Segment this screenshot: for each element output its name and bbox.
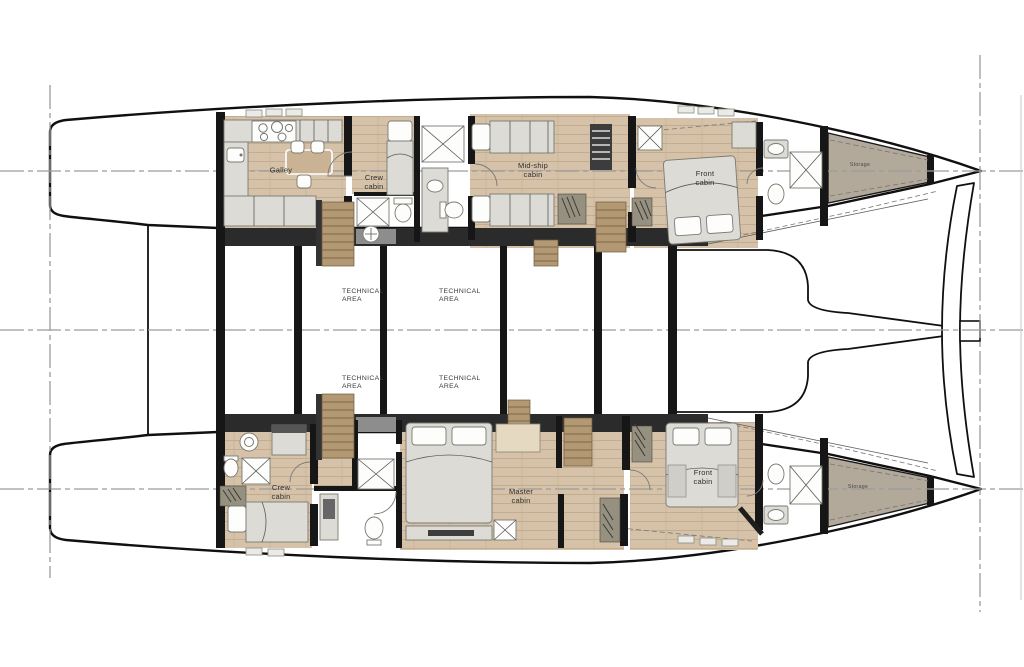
room-label-master-cabin: Master cabin: [504, 488, 538, 506]
galley-table: [286, 150, 332, 174]
bed-pillow: [472, 196, 490, 222]
galley-chair: [311, 141, 324, 153]
midship-bed-upper: [490, 121, 554, 153]
bed-pillow: [706, 214, 733, 234]
vanity: [422, 168, 448, 232]
tv-unit: [428, 530, 474, 536]
label-technical-area-2: TECHNICAL AREA: [439, 288, 487, 304]
crew-bed: [246, 502, 308, 542]
room-label-starboard-storage: Storage: [838, 484, 878, 490]
label-technical-area-4: TECHNICAL AREA: [439, 375, 487, 391]
room-label-port-storage: Storage: [840, 162, 880, 168]
bed-pillow: [674, 216, 701, 236]
toilet: [395, 204, 411, 222]
bowsprit-fitting: [960, 321, 980, 341]
washing-machine: [240, 433, 258, 451]
galley-chair: [291, 141, 304, 153]
room-label-starboard-crew-cabin: Crew cabin: [264, 484, 298, 502]
room-label-starboard-front-cabin: Front cabin: [686, 469, 720, 487]
staircase-starboard-aft: [316, 394, 354, 460]
room-label-port-front-cabin: Front cabin: [688, 170, 722, 188]
toilet: [224, 459, 238, 477]
galley-settee: [224, 196, 316, 226]
bed-pillow: [452, 427, 486, 445]
toilet: [445, 202, 463, 218]
bed-pillow: [412, 427, 446, 445]
room-label-port-crew-cabin: Crew cabin: [357, 174, 391, 192]
toilet: [365, 517, 383, 539]
label-technical-area-1: TECHNICAL AREA: [342, 288, 390, 304]
toilet: [768, 464, 784, 484]
wardrobe: [496, 424, 540, 452]
bed-pillow: [388, 121, 412, 141]
midship-bed-lower: [490, 194, 554, 226]
toilet: [768, 184, 784, 204]
room-label-midship-cabin: Mid-ship cabin: [512, 162, 554, 180]
staircase-port-aft: [316, 200, 354, 266]
floorplan-drawing: [0, 0, 1024, 667]
bed-pillow: [705, 428, 731, 445]
foredeck-struts: [676, 250, 944, 412]
catamaran-deck-plan: Galley Crew cabin Mid-ship cabin Front c…: [0, 0, 1024, 667]
label-technical-area-3: TECHNICAL AREA: [342, 375, 390, 391]
galley-chair: [297, 175, 311, 188]
bed-pillow: [228, 506, 246, 532]
bed-pillow: [673, 428, 699, 445]
bed-pillow: [472, 124, 490, 150]
room-label-galley: Galley: [270, 167, 292, 176]
